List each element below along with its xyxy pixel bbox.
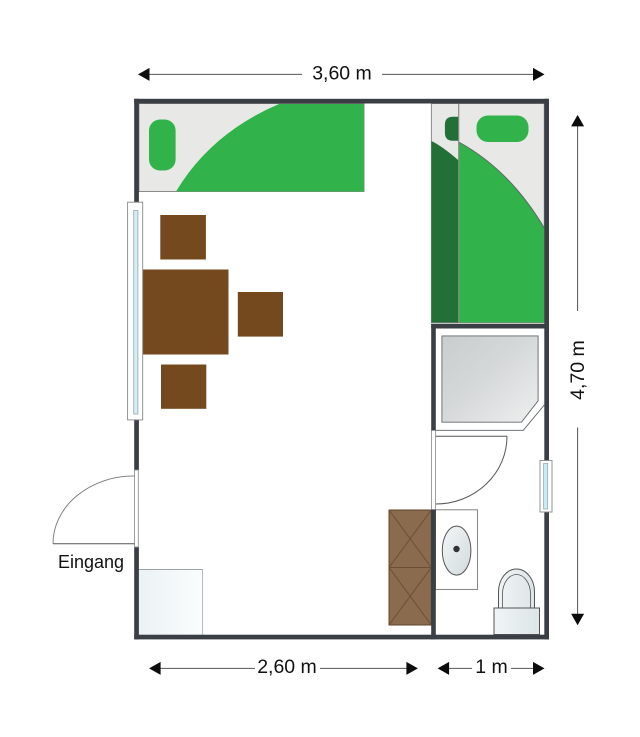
svg-text:2,60 m: 2,60 m (257, 656, 317, 678)
svg-text:3,60 m: 3,60 m (312, 62, 372, 84)
svg-text:4,70 m: 4,70 m (567, 340, 589, 400)
svg-text:Eingang: Eingang (58, 552, 124, 572)
svg-text:1 m: 1 m (475, 656, 508, 678)
